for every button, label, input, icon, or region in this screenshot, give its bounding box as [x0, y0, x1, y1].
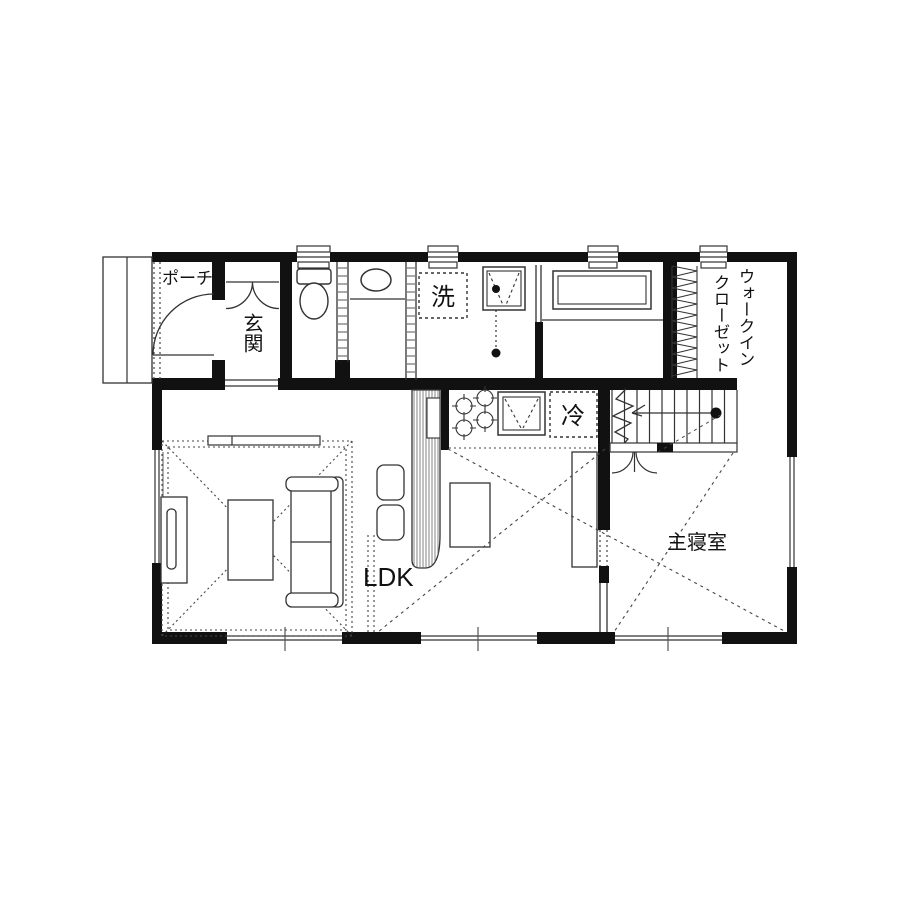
stair-lower-band — [610, 443, 737, 452]
stool-2 — [377, 505, 404, 540]
floor-plan-page: ポーチ 玄関 洗 冷 LDK 主寝室 ウォークイン クローゼット — [0, 0, 900, 900]
floor-plan-drawing: ポーチ 玄関 洗 冷 LDK 主寝室 ウォークイン クローゼット — [0, 0, 900, 900]
toilet-tank — [297, 269, 331, 284]
wall-shelf — [208, 436, 320, 445]
vanity-basin — [483, 267, 525, 358]
coffee-table — [228, 500, 273, 580]
label-master-bedroom: 主寝室 — [667, 531, 727, 554]
sofa-armrest-top — [286, 477, 338, 491]
bedroom-opening — [600, 530, 607, 566]
label-wic-2: クローゼット — [711, 274, 730, 373]
tv-board — [161, 497, 187, 583]
basin-oval — [361, 269, 391, 291]
dining-table — [450, 483, 490, 547]
room-powder — [350, 269, 405, 299]
label-wic-1: ウォークイン — [736, 268, 754, 367]
toilet-bowl — [300, 283, 328, 319]
sofa-back — [331, 477, 343, 607]
stair-direction-arrow — [632, 405, 722, 419]
label-entrance: 玄関 — [240, 313, 262, 353]
window-top-closet — [700, 246, 727, 268]
label-ldk: LDK — [363, 562, 414, 592]
front-door — [153, 294, 214, 355]
bedroom-double-door — [612, 452, 657, 473]
window-bottom-living — [227, 627, 342, 651]
kitchen-sink — [498, 392, 545, 435]
stair-break-line — [613, 389, 633, 448]
label-porch: ポーチ — [162, 269, 213, 288]
window-top-bath — [588, 246, 618, 268]
window-bottom-dining — [421, 627, 537, 651]
gas-stove — [452, 386, 497, 440]
island-sink — [427, 398, 440, 438]
room-bath — [542, 271, 663, 320]
shoe-closet-doors — [226, 282, 279, 309]
porch-dotted-edge — [154, 262, 160, 381]
sofa-armrest-bottom — [286, 593, 338, 607]
window-top-toilet — [297, 246, 330, 268]
room-entrance — [226, 282, 279, 309]
sofa — [286, 477, 343, 607]
room-toilet — [297, 269, 331, 319]
window-right-bedroom — [790, 457, 794, 567]
cupboard — [572, 452, 597, 567]
window-bottom-bedroom — [615, 627, 722, 651]
window-top-laundry — [428, 246, 458, 268]
stool-1 — [377, 465, 404, 500]
stairs — [610, 389, 737, 473]
room-laundry — [419, 267, 525, 358]
label-laundry: 洗 — [431, 284, 455, 311]
bathtub-inner — [558, 276, 646, 304]
label-fridge: 冷 — [561, 403, 585, 430]
bathtub-outer — [553, 271, 651, 309]
